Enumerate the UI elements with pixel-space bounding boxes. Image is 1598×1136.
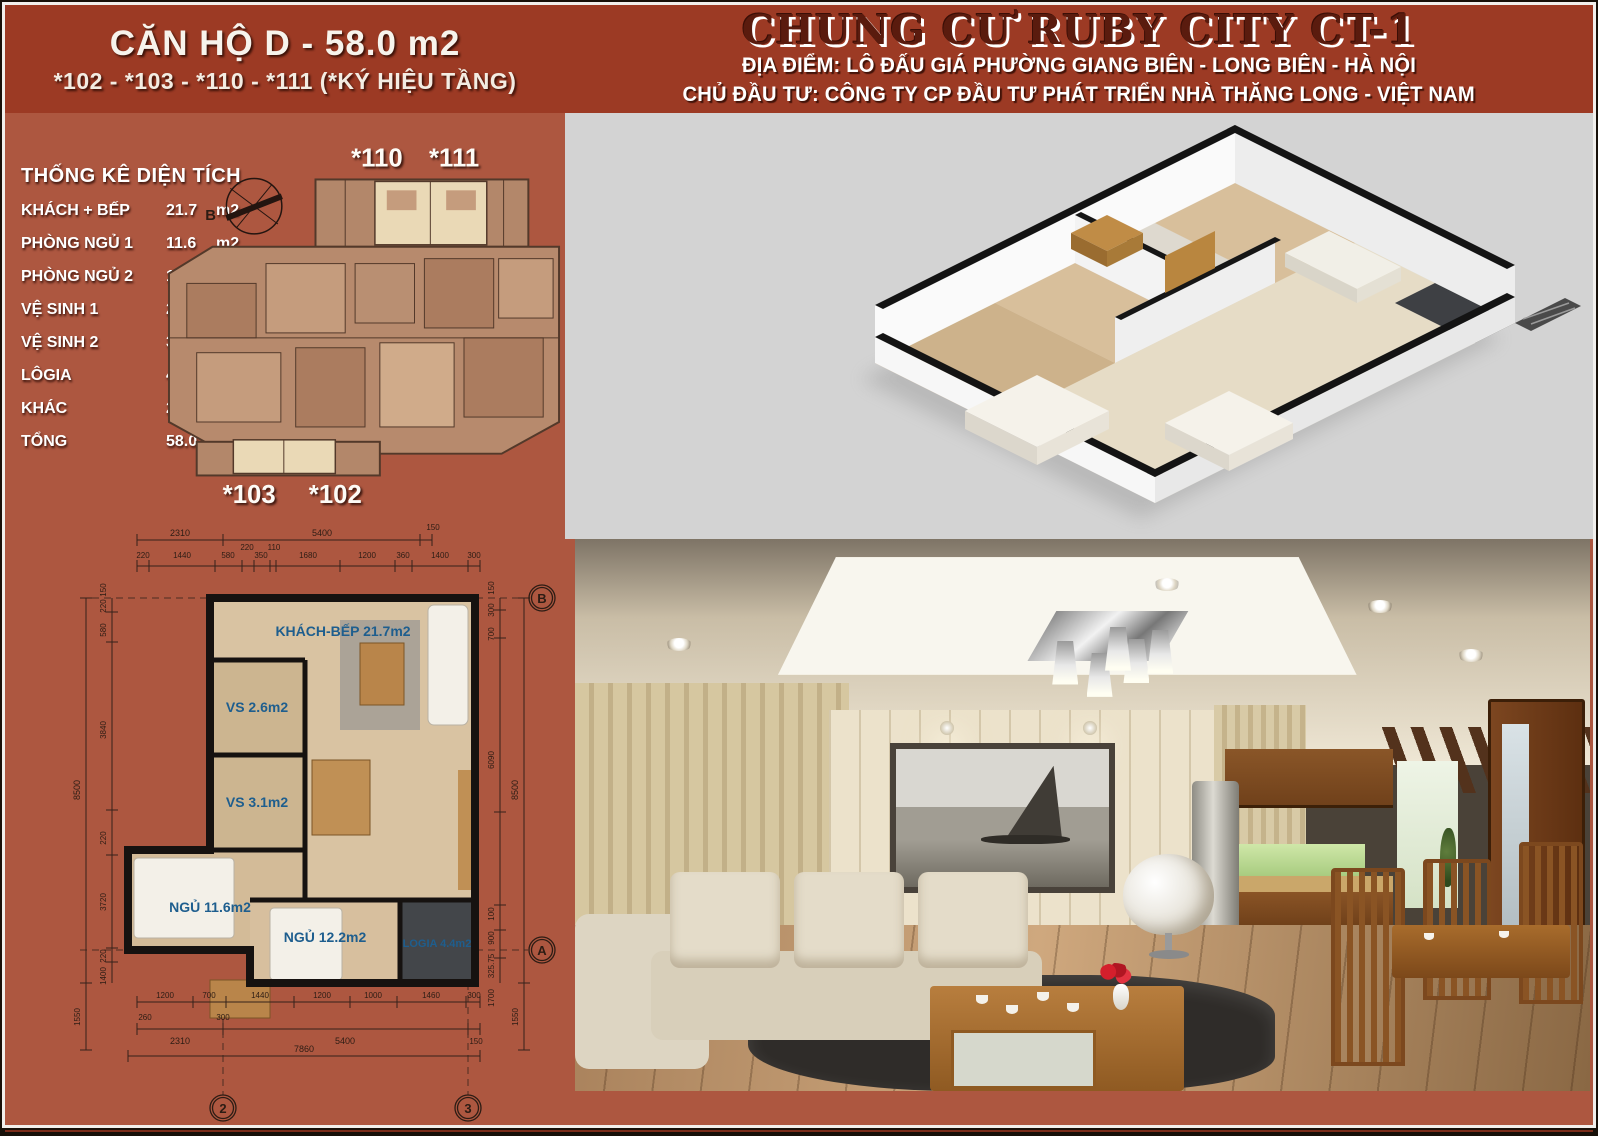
tea-set — [1006, 1005, 1018, 1014]
svg-text:5400: 5400 — [312, 528, 332, 538]
compass-icon: B — [205, 178, 282, 233]
grid-bubble-3: 3 — [464, 1101, 471, 1116]
ceiling-spotlight — [1154, 578, 1180, 591]
dining-cup — [1499, 931, 1509, 938]
row-label: LÔGIA — [21, 367, 166, 385]
svg-text:8500: 8500 — [510, 780, 520, 800]
svg-text:220: 220 — [136, 551, 150, 560]
room-label-wc2: VS 3.1m2 — [226, 794, 288, 810]
room-label-bed1: NGỦ 11.6m2 — [169, 898, 251, 915]
svg-text:220: 220 — [99, 831, 108, 845]
svg-text:360: 360 — [396, 551, 410, 560]
egg-chair — [1123, 854, 1214, 959]
wall-lamp — [1083, 721, 1097, 735]
svg-text:580: 580 — [99, 623, 108, 637]
floorplate-overview: B — [167, 125, 563, 521]
svg-text:1400: 1400 — [431, 551, 449, 560]
project-location: ĐỊA ĐIỂM: LÔ ĐẤU GIÁ PHƯỜNG GIANG BIÊN -… — [742, 52, 1416, 80]
svg-text:300: 300 — [216, 1013, 230, 1022]
ceiling-spotlight — [1367, 600, 1393, 613]
row-label: VỆ SINH 2 — [21, 334, 166, 352]
svg-text:1400: 1400 — [99, 967, 108, 985]
svg-text:2310: 2310 — [170, 528, 190, 538]
row-label: VỆ SINH 1 — [21, 301, 166, 319]
boat-sail — [1006, 766, 1061, 838]
chandelier-shade — [1052, 641, 1078, 685]
svg-text:1200: 1200 — [156, 991, 174, 1000]
svg-text:1700: 1700 — [487, 989, 496, 1007]
svg-text:150: 150 — [487, 581, 496, 595]
svg-text:1550: 1550 — [73, 1008, 82, 1026]
svg-text:220: 220 — [99, 599, 108, 613]
vase — [1113, 984, 1129, 1010]
row-label: PHÒNG NGỦ 2 — [21, 268, 166, 286]
svg-text:100: 100 — [487, 907, 496, 921]
svg-text:580: 580 — [221, 551, 235, 560]
row-label: PHÒNG NGỦ 1 — [21, 235, 166, 253]
svg-text:700: 700 — [487, 627, 496, 641]
coffee-table — [930, 986, 1184, 1091]
kitchen-upper-cabinets — [1225, 749, 1393, 809]
svg-text:350: 350 — [254, 551, 268, 560]
room-label-bed2: NGỦ 12.2m2 — [284, 928, 367, 945]
floorplate-main-band — [169, 247, 559, 454]
grid-bubble-B: B — [537, 591, 546, 606]
egg-chair-base — [1149, 950, 1189, 958]
chandelier-shade — [1147, 630, 1173, 674]
floorplate-top-wing — [316, 179, 529, 246]
apartment-unit-codes: *102 - *103 - *110 - *111 (*KÝ HIỆU TẦNG… — [54, 68, 517, 95]
svg-text:220: 220 — [240, 543, 254, 552]
unit-floor-plan: KHÁCH-BẾP 21.7m2 VS 2.6m2 VS 3.1m2 NGỦ 1… — [60, 510, 565, 1130]
row-label: KHÁC — [21, 400, 166, 418]
tea-set — [1067, 1003, 1079, 1012]
dining-cup — [1424, 933, 1434, 940]
project-header: CHUNG CƯ RUBY CITY CT-1 ĐỊA ĐIỂM: LÔ ĐẤU… — [565, 5, 1593, 113]
svg-text:1440: 1440 — [251, 991, 269, 1000]
svg-text:2310: 2310 — [170, 1036, 190, 1046]
dining-table — [1392, 925, 1570, 978]
roses — [1098, 963, 1132, 985]
svg-text:150: 150 — [426, 523, 440, 532]
grid-bubble-A: A — [537, 943, 547, 958]
room-label-wc1: VS 2.6m2 — [226, 699, 288, 715]
svg-text:900: 900 — [487, 931, 496, 945]
svg-text:1000: 1000 — [364, 991, 382, 1000]
sofa-cushion — [918, 872, 1028, 968]
svg-text:1200: 1200 — [358, 551, 376, 560]
svg-text:110: 110 — [268, 543, 281, 552]
svg-text:260: 260 — [138, 1013, 152, 1022]
chandelier-shade — [1105, 627, 1131, 671]
grid-bubble-2: 2 — [219, 1101, 226, 1116]
svg-text:300: 300 — [487, 603, 496, 617]
unit-label-102: *102 — [309, 481, 362, 509]
dining-set — [1326, 859, 1580, 1080]
svg-text:1200: 1200 — [313, 991, 331, 1000]
svg-text:150: 150 — [469, 1037, 483, 1046]
svg-text:1440: 1440 — [173, 551, 191, 560]
svg-text:325.75: 325.75 — [487, 953, 496, 978]
project-title: CHUNG CƯ RUBY CITY CT-1 — [742, 9, 1417, 52]
project-investor: CHỦ ĐẦU TƯ: CÔNG TY CP ĐẦU TƯ PHÁT TRIỂN… — [683, 81, 1475, 109]
unit-label-111: *111 — [429, 145, 479, 173]
apartment-title: CĂN HỘ D - 58.0 m2 — [110, 24, 461, 64]
svg-text:300: 300 — [467, 551, 481, 560]
dining-chair — [1519, 842, 1583, 1005]
svg-text:1460: 1460 — [422, 991, 440, 1000]
interior-render — [575, 539, 1590, 1091]
tea-set — [976, 995, 988, 1004]
sofa-cushion — [670, 872, 780, 968]
boat-hull — [981, 835, 1071, 845]
coffee-table-drawer — [951, 1030, 1097, 1088]
svg-text:1680: 1680 — [299, 551, 317, 560]
tea-set — [1037, 992, 1049, 1001]
room-label-living: KHÁCH-BẾP 21.7m2 — [275, 623, 410, 639]
svg-text:3720: 3720 — [99, 893, 108, 911]
room-label-logia: LOGIA 4.4m2 — [403, 938, 472, 950]
svg-text:220: 220 — [99, 949, 108, 963]
poster: CĂN HỘ D - 58.0 m2 *102 - *103 - *110 - … — [0, 0, 1598, 1136]
unit-label-110: *110 — [351, 145, 403, 173]
svg-text:7860: 7860 — [294, 1044, 314, 1054]
unit-label-103: *103 — [223, 481, 276, 509]
svg-text:700: 700 — [202, 991, 216, 1000]
isometric-render-panel — [565, 113, 1593, 539]
svg-text:3840: 3840 — [99, 721, 108, 739]
row-label: KHÁCH + BẾP — [21, 202, 166, 220]
sofa-cushion — [794, 872, 904, 968]
floorplate-bottom-wing — [197, 440, 380, 476]
svg-text:1550: 1550 — [511, 1008, 520, 1026]
svg-text:150: 150 — [99, 583, 108, 597]
apartment-header: CĂN HỘ D - 58.0 m2 *102 - *103 - *110 - … — [5, 5, 565, 113]
chandelier — [1047, 633, 1179, 710]
right-column: CHUNG CƯ RUBY CITY CT-1 ĐỊA ĐIỂM: LÔ ĐẤU… — [565, 5, 1593, 1125]
svg-text:300: 300 — [467, 991, 481, 1000]
egg-chair-shell — [1123, 854, 1214, 936]
isometric-apartment-render — [565, 113, 1593, 539]
left-column: CĂN HỘ D - 58.0 m2 *102 - *103 - *110 - … — [5, 5, 565, 1125]
svg-text:8500: 8500 — [72, 780, 82, 800]
row-label: TỔNG — [21, 433, 166, 451]
svg-text:6090: 6090 — [487, 751, 496, 769]
compass-north-label: B — [205, 208, 216, 224]
svg-text:5400: 5400 — [335, 1036, 355, 1046]
poster-inner: CĂN HỘ D - 58.0 m2 *102 - *103 - *110 - … — [2, 2, 1596, 1128]
